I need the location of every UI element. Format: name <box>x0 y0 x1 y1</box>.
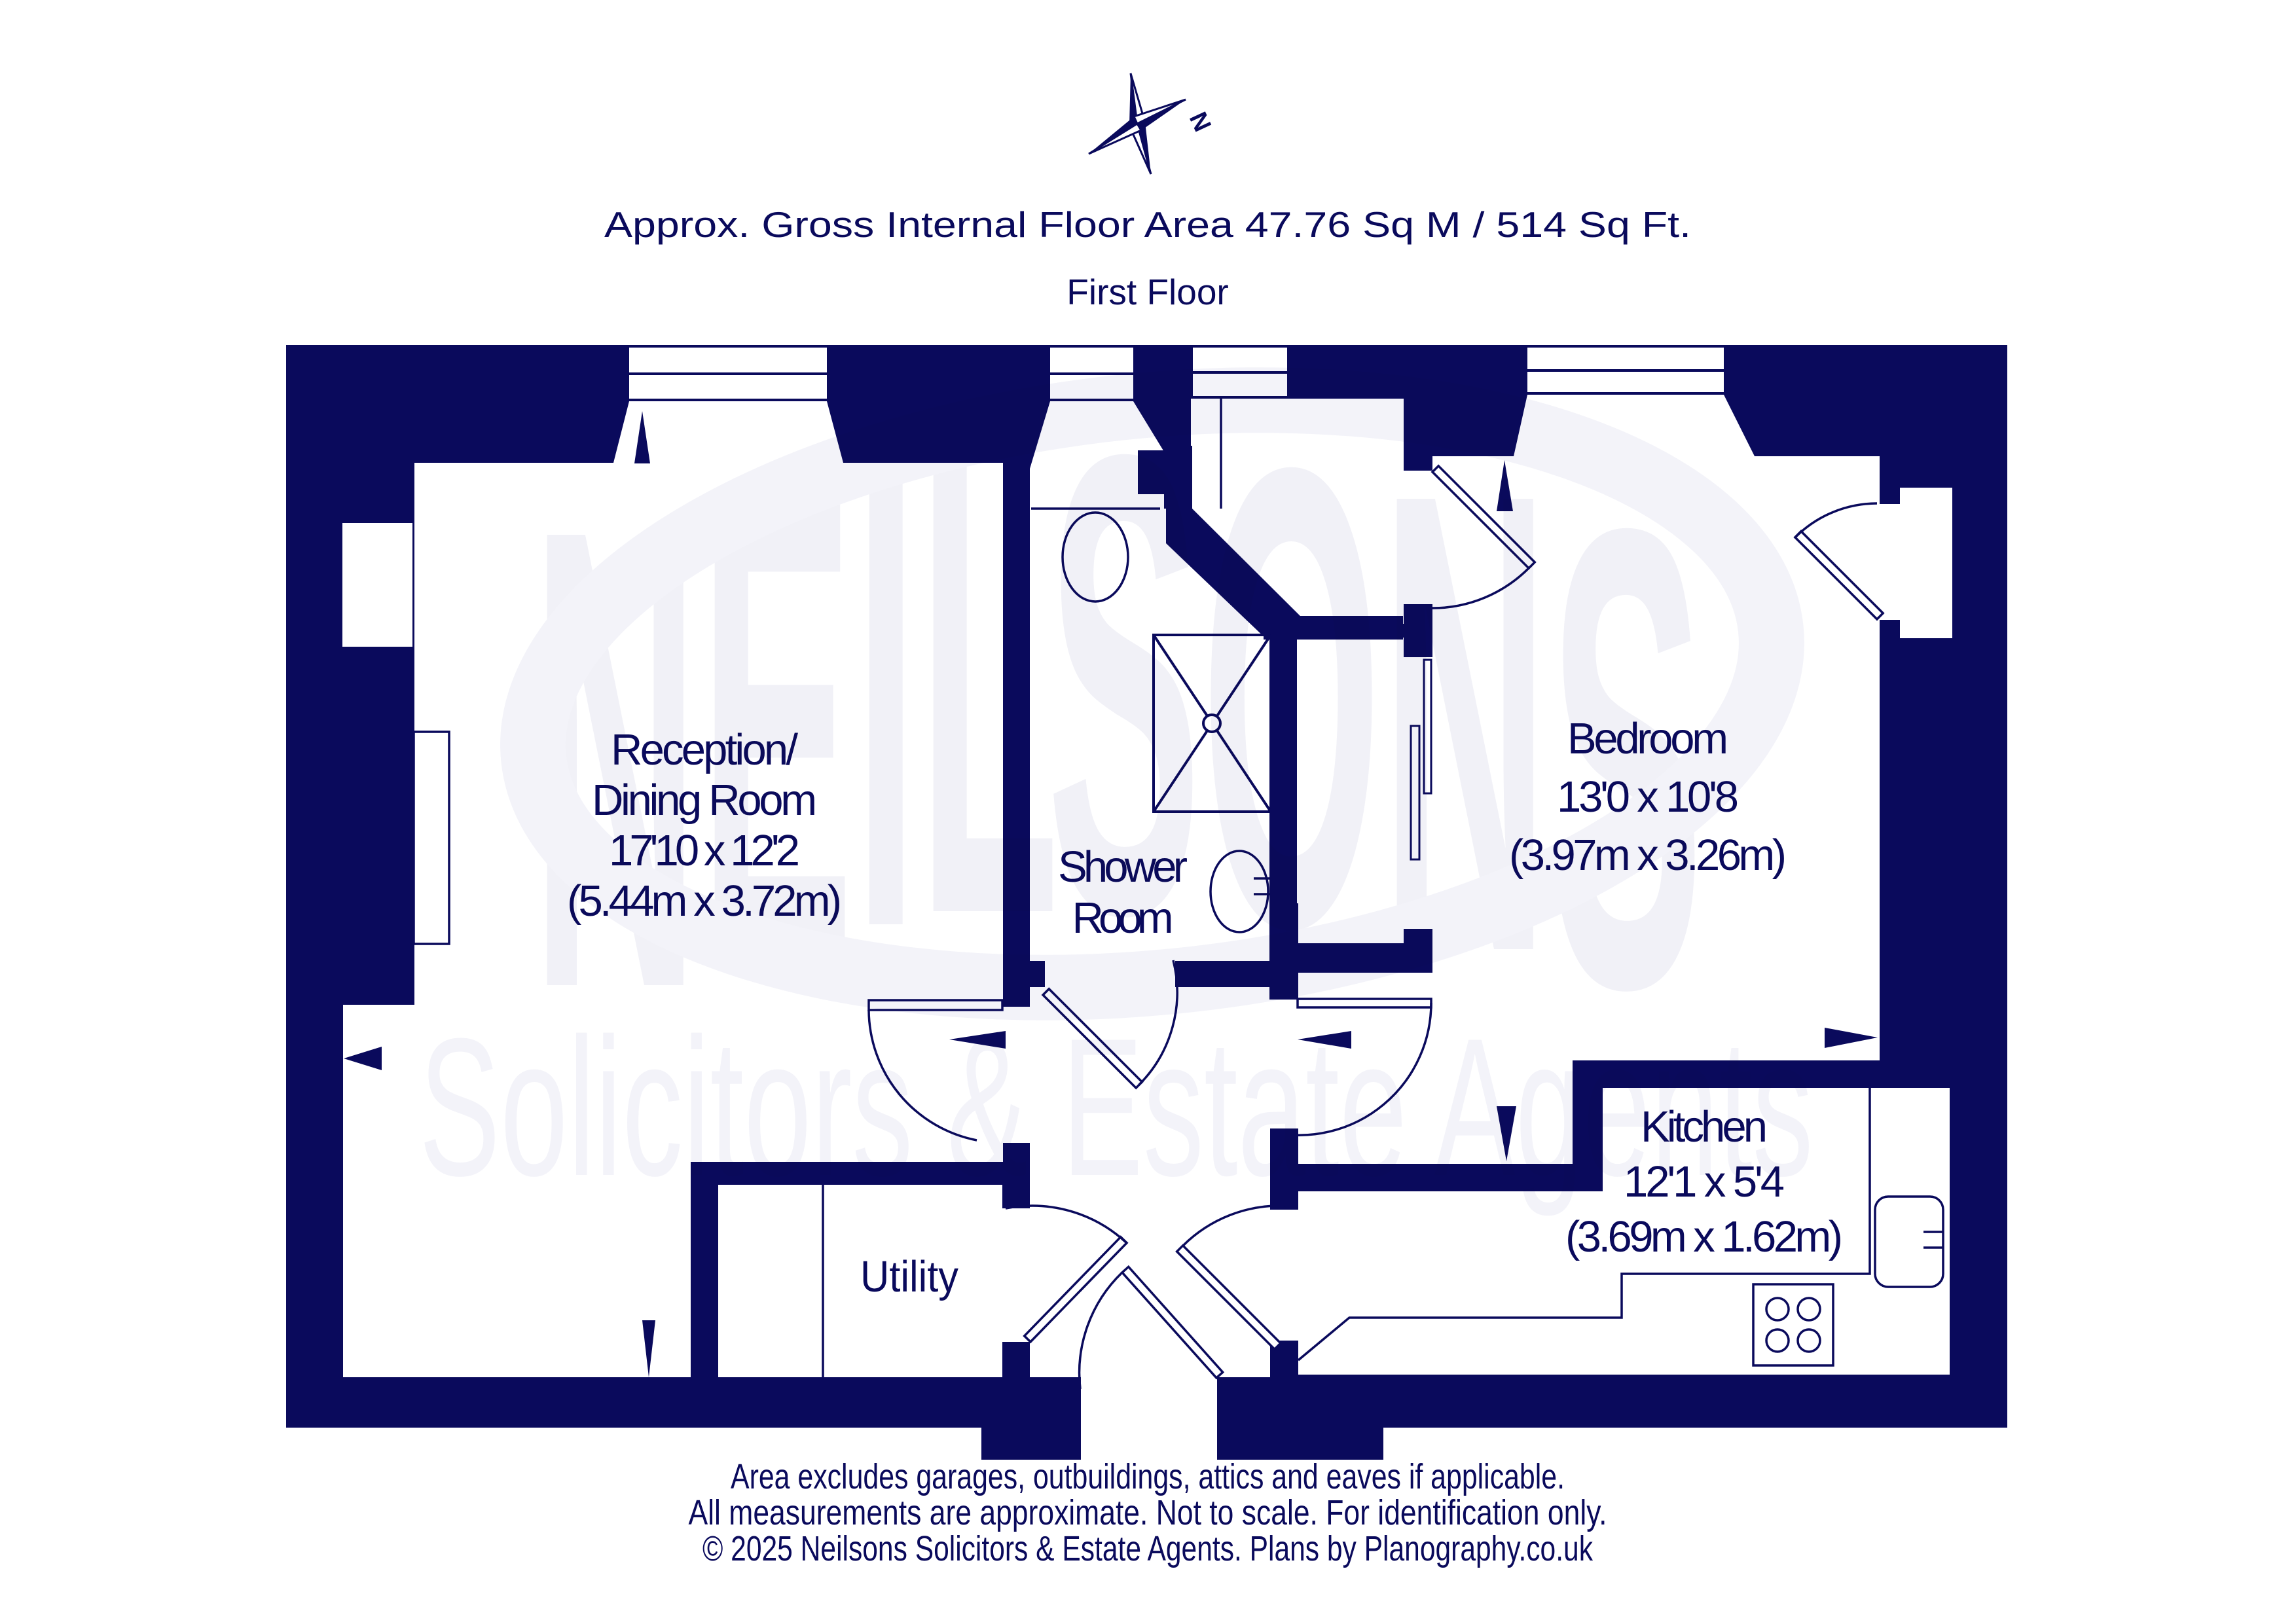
svg-text:(3.69m x 1.62m): (3.69m x 1.62m) <box>1565 1212 1843 1261</box>
svg-text:Solicitors & Estate Agents: Solicitors & Estate Agents <box>419 997 1813 1216</box>
svg-text:© 2025 Neilsons Solicitors & E: © 2025 Neilsons Solicitors & Estate Agen… <box>702 1529 1594 1568</box>
svg-text:First Floor: First Floor <box>1066 272 1229 312</box>
svg-text:Utility: Utility <box>860 1252 958 1301</box>
svg-text:Area excludes garages, outbuil: Area excludes garages, outbuildings, att… <box>731 1457 1565 1496</box>
svg-text:N: N <box>1381 357 1549 1088</box>
svg-text:All measurements are approxima: All measurements are approximate. Not to… <box>689 1493 1607 1532</box>
svg-text:Approx. Gross Internal Floor A: Approx. Gross Internal Floor Area 47.76 … <box>604 204 1691 245</box>
